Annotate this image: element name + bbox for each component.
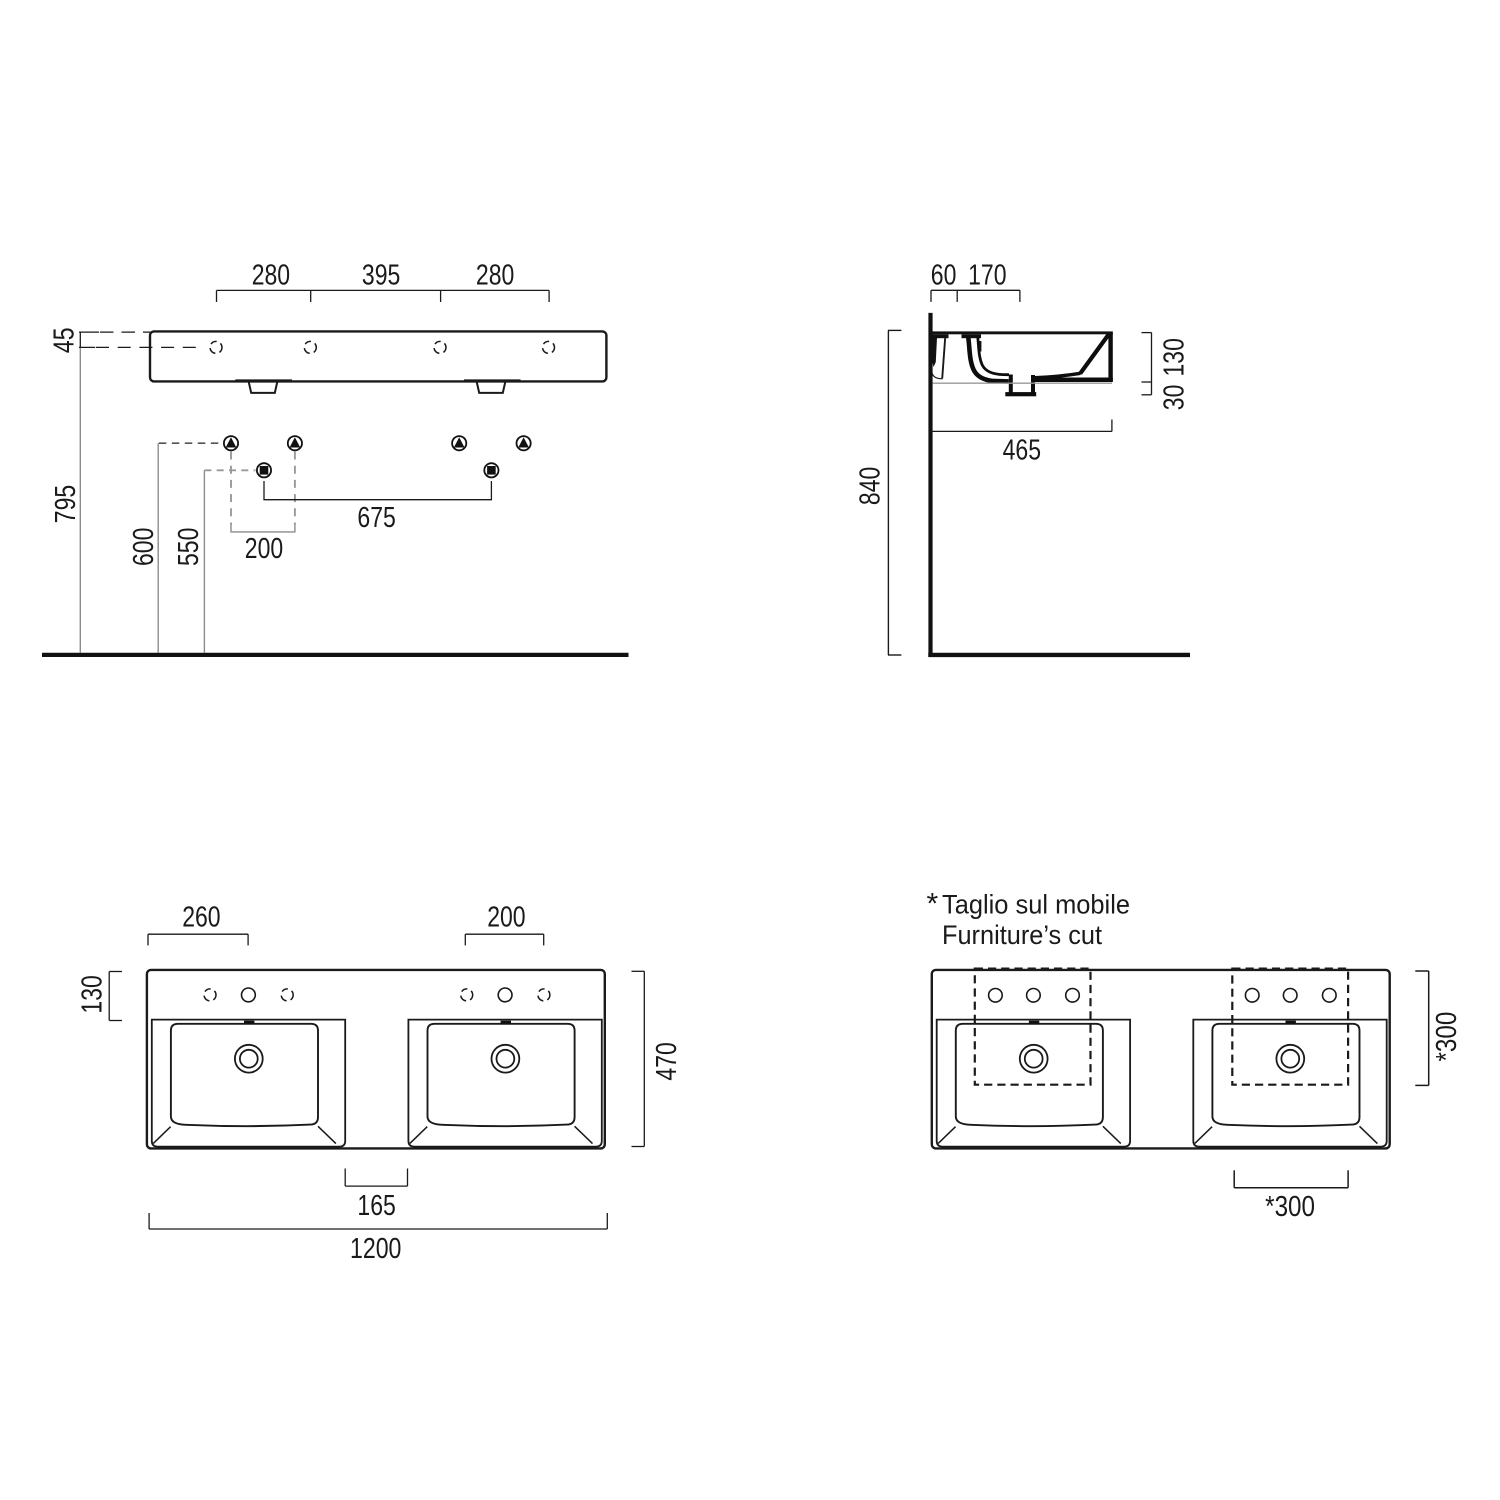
svg-text:280: 280 [252, 259, 290, 291]
svg-text:165: 165 [357, 1190, 395, 1222]
svg-text:30: 30 [1159, 385, 1191, 411]
svg-text:45: 45 [49, 328, 81, 354]
svg-text:200: 200 [487, 902, 525, 934]
svg-text:130: 130 [77, 975, 109, 1013]
svg-text:Taglio sul mobile: Taglio sul mobile [942, 890, 1130, 920]
svg-text:395: 395 [362, 259, 400, 291]
svg-text:550: 550 [173, 528, 205, 566]
svg-text:*300: *300 [1431, 1012, 1463, 1062]
svg-text:60: 60 [931, 259, 957, 291]
svg-text:465: 465 [1003, 435, 1041, 467]
svg-text:840: 840 [855, 467, 887, 505]
svg-text:Furniture’s cut: Furniture’s cut [942, 920, 1102, 950]
svg-text:600: 600 [128, 528, 160, 566]
svg-text:675: 675 [357, 502, 395, 534]
svg-text:470: 470 [651, 1042, 683, 1080]
svg-text:280: 280 [476, 259, 514, 291]
svg-text:1200: 1200 [350, 1233, 402, 1265]
svg-text:130: 130 [1159, 338, 1191, 376]
svg-text:*: * [927, 888, 939, 921]
svg-text:170: 170 [968, 259, 1006, 291]
svg-text:*300: *300 [1265, 1191, 1315, 1223]
svg-text:200: 200 [245, 533, 283, 565]
svg-text:260: 260 [182, 902, 220, 934]
svg-text:795: 795 [50, 485, 82, 523]
